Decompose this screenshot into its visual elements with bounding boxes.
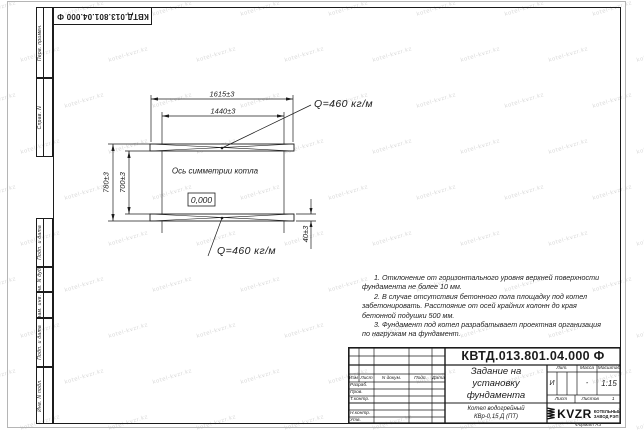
row-label-nkontr: Н.контр. bbox=[348, 410, 374, 417]
load-label-bottom: Q=460 кг/м bbox=[217, 245, 276, 257]
load-label-top: Q=460 кг/м bbox=[314, 98, 373, 110]
drawing-title-line3: фундамента bbox=[467, 390, 525, 402]
drawing-title-line1: Задание на bbox=[471, 366, 522, 378]
company-name: КОТЕЛЬНЫЙ ЗАВОД РЭП bbox=[594, 409, 621, 419]
col-header-dokum: N докум. bbox=[374, 374, 409, 382]
kvzr-spring-icon bbox=[547, 407, 555, 420]
title-block: Изм Лист N докум. Подп. Дата Разраб. Про… bbox=[348, 347, 621, 424]
product-name-line1: Котел водогрейный bbox=[467, 406, 524, 414]
format-label: Формат А3 bbox=[556, 423, 620, 428]
row-label-utv: Утв. bbox=[348, 417, 374, 424]
level-mark-value: 0,000 bbox=[191, 195, 213, 205]
note-2: 2. В случае отсутствия бетонного пола пл… bbox=[362, 292, 605, 320]
col-header-podp: Подп. bbox=[409, 374, 432, 382]
dim-text-700: 700±3 bbox=[118, 171, 127, 193]
load-leader-bottom: Q=460 кг/м bbox=[208, 217, 276, 257]
company-name-line2: ЗАВОД РЭП bbox=[594, 414, 621, 419]
listov-value: 1 bbox=[612, 397, 615, 402]
note-1: 1. Отклонение от горизонтального уровня … bbox=[362, 273, 605, 292]
drawing-title-line2: установку bbox=[472, 378, 519, 390]
list-label: Лист bbox=[547, 395, 575, 403]
lit-header: Лит. bbox=[547, 365, 577, 372]
massa-value: - bbox=[577, 372, 597, 395]
dim-text-40: 40±3 bbox=[301, 225, 310, 242]
drawing-sheet: kotel-kvzr.kzkotel-kvzr.kzkotel-kvzr.kzk… bbox=[0, 0, 644, 430]
level-mark: 0,000 bbox=[188, 193, 215, 206]
kvzr-logo: KVZR КОТЕЛЬНЫЙ ЗАВОД РЭП bbox=[547, 403, 621, 424]
row-label-razrab: Разраб. bbox=[348, 382, 374, 389]
col-header-izm: Изм bbox=[348, 374, 359, 382]
product-name-line2: КВр-0,15 Д (ПТ) bbox=[474, 414, 518, 422]
masshtab-header: Масштаб bbox=[597, 365, 621, 372]
masshtab-value: 1:15 bbox=[597, 372, 621, 395]
load-leader-top: Q=460 кг/м bbox=[221, 98, 373, 149]
drawing-title: Задание на установку фундамента bbox=[445, 365, 547, 403]
massa-header: Масса bbox=[577, 365, 597, 372]
row-label-tkontr: Т.контр. bbox=[348, 396, 374, 403]
symmetry-axis-label: Ось симметрии котла bbox=[172, 167, 259, 176]
listov-cell: Листов 1 bbox=[575, 395, 621, 403]
kvzr-logo-text: KVZR bbox=[557, 407, 592, 421]
col-header-list: Лист bbox=[359, 374, 374, 382]
listov-label: Листов bbox=[581, 397, 598, 402]
notes-block: 1. Отклонение от горизонтального уровня … bbox=[362, 273, 605, 339]
product-name: Котел водогрейный КВр-0,15 Д (ПТ) bbox=[445, 403, 547, 424]
note-3: 3. Фундамент под котел разрабатывает про… bbox=[362, 320, 605, 339]
col-header-data: Дата bbox=[432, 374, 445, 382]
dim-text-1615: 1615±3 bbox=[210, 90, 236, 99]
dimension-700: 700±3 bbox=[118, 151, 150, 214]
dimension-40: 40±3 bbox=[296, 199, 316, 249]
dim-text-780: 780±3 bbox=[102, 171, 111, 193]
row-label-prov: Пров. bbox=[348, 389, 374, 396]
dim-text-1440: 1440±3 bbox=[211, 107, 237, 116]
dimension-1440: 1440±3 bbox=[162, 107, 284, 118]
title-block-doc-number: КВТД.013.801.04.000 Ф bbox=[445, 347, 621, 365]
lit-value: И bbox=[547, 372, 557, 395]
